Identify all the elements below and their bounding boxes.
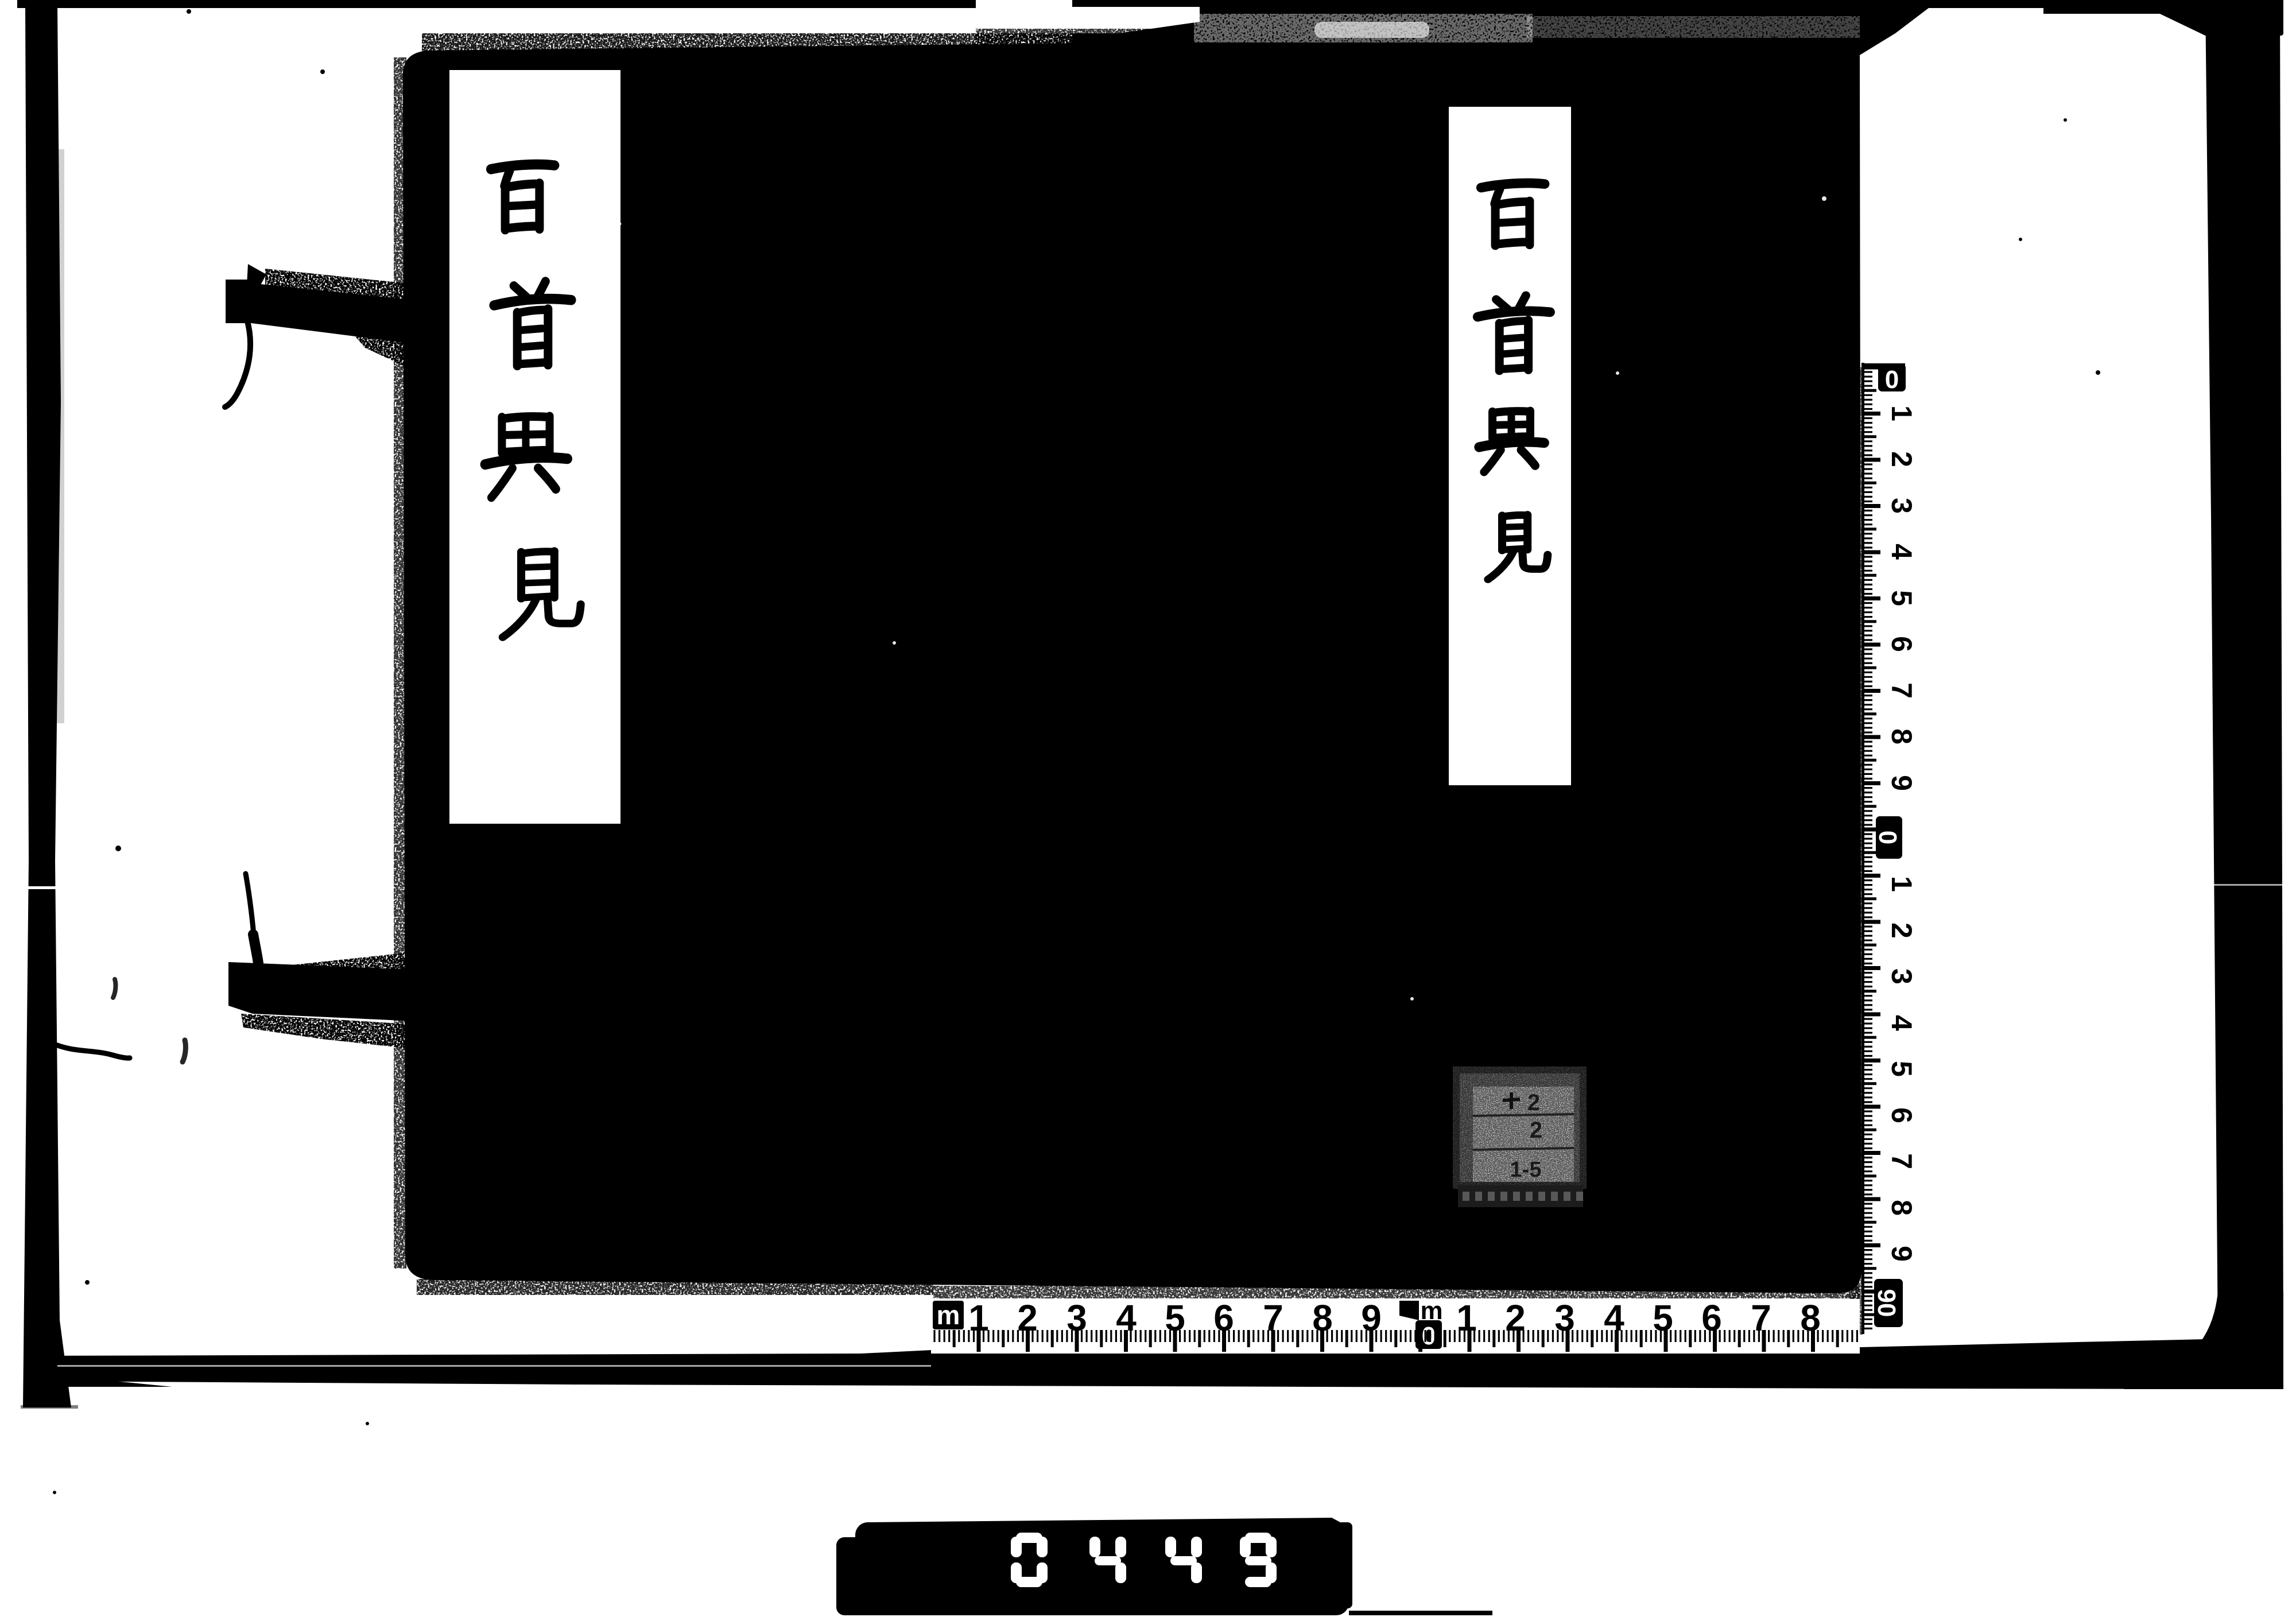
svg-text:8: 8 (1886, 1200, 1918, 1216)
svg-text:5: 5 (1886, 590, 1918, 606)
svg-text:9: 9 (1886, 1246, 1918, 1262)
svg-text:2: 2 (1530, 1118, 1542, 1143)
svg-text:4: 4 (1886, 544, 1918, 560)
svg-text:0: 0 (1885, 366, 1899, 394)
svg-text:7: 7 (1886, 1153, 1918, 1169)
svg-text:90: 90 (1872, 1289, 1901, 1317)
svg-text:0: 0 (1874, 831, 1902, 844)
svg-text:6: 6 (1886, 636, 1918, 652)
svg-text:2: 2 (1527, 1090, 1540, 1115)
svg-text:m: m (937, 1300, 960, 1330)
svg-text:1-5: 1-5 (1510, 1158, 1542, 1182)
svg-text:3: 3 (1886, 968, 1918, 984)
svg-text:2: 2 (1886, 451, 1918, 467)
svg-text:1: 1 (1886, 405, 1918, 421)
svg-text:7: 7 (1886, 683, 1918, 699)
svg-text:9: 9 (1886, 775, 1918, 791)
svg-text:3: 3 (1886, 498, 1918, 514)
svg-text:6: 6 (1886, 1107, 1918, 1123)
svg-text:0: 0 (1422, 1322, 1436, 1350)
svg-text:5: 5 (1886, 1061, 1918, 1077)
svg-text:4: 4 (1886, 1015, 1918, 1031)
svg-text:1: 1 (1886, 876, 1918, 892)
svg-text:8: 8 (1886, 728, 1918, 744)
svg-text:2: 2 (1886, 922, 1918, 939)
